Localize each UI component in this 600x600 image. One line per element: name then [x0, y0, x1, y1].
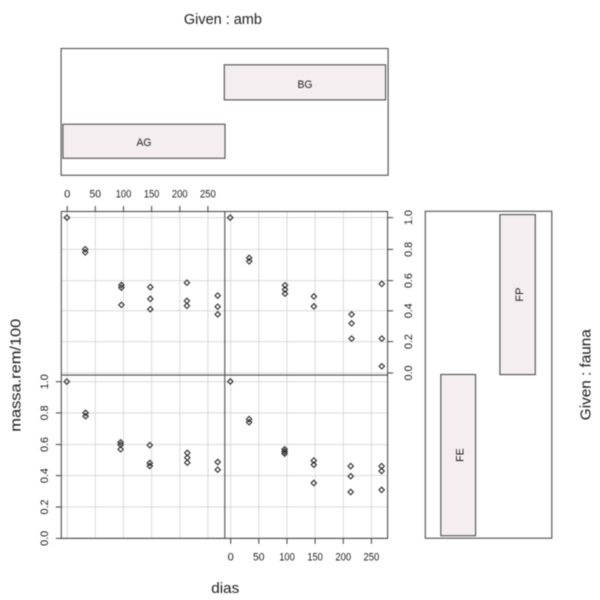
svg-text:0: 0	[228, 552, 234, 564]
svg-text:0.2: 0.2	[39, 500, 51, 515]
svg-text:100: 100	[279, 552, 295, 564]
svg-text:0.8: 0.8	[39, 405, 51, 420]
svg-text:250: 250	[364, 552, 380, 564]
svg-text:100: 100	[116, 188, 132, 200]
svg-text:150: 150	[307, 552, 323, 564]
svg-text:0.0: 0.0	[403, 366, 415, 381]
svg-text:1.0: 1.0	[403, 210, 415, 225]
svg-text:250: 250	[200, 188, 216, 200]
svg-text:0.8: 0.8	[403, 242, 415, 257]
svg-text:Given : fauna: Given : fauna	[578, 329, 595, 421]
svg-text:0.6: 0.6	[403, 273, 415, 288]
svg-text:0.4: 0.4	[403, 303, 415, 318]
svg-text:1.0: 1.0	[39, 374, 51, 389]
svg-text:AG: AG	[137, 137, 152, 149]
svg-text:50: 50	[253, 552, 265, 564]
svg-text:50: 50	[90, 188, 102, 200]
svg-text:massa.rem/100: massa.rem/100	[8, 319, 25, 432]
svg-text:Given : amb: Given : amb	[184, 11, 262, 28]
svg-text:150: 150	[144, 188, 160, 200]
svg-text:0.0: 0.0	[39, 531, 51, 546]
svg-text:dias: dias	[211, 580, 239, 597]
svg-text:FE: FE	[455, 448, 467, 462]
svg-text:BG: BG	[298, 79, 313, 91]
svg-text:0.4: 0.4	[39, 468, 51, 483]
svg-text:200: 200	[335, 552, 351, 564]
svg-text:0: 0	[64, 188, 70, 200]
svg-text:200: 200	[172, 188, 188, 200]
svg-text:0.2: 0.2	[403, 334, 415, 349]
svg-text:FP: FP	[514, 288, 526, 302]
svg-text:0.6: 0.6	[39, 437, 51, 452]
